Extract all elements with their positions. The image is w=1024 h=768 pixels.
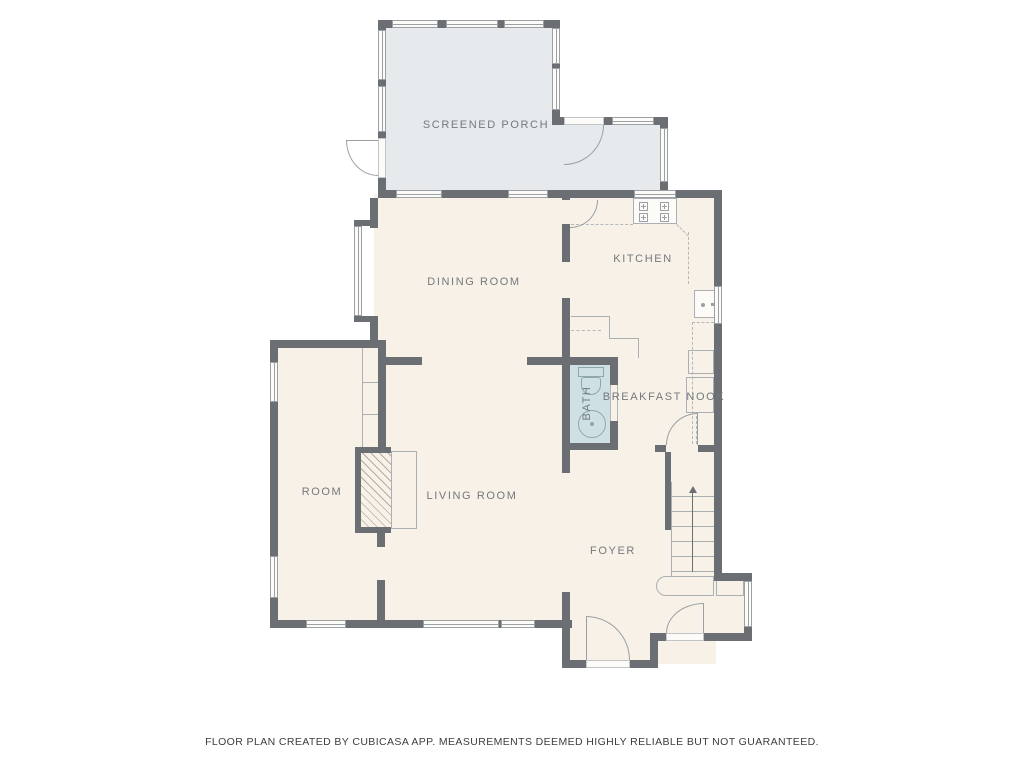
- window: [354, 226, 362, 316]
- kitchen-cabinet-line: [692, 322, 714, 323]
- window: [306, 620, 346, 628]
- wall: [386, 357, 422, 365]
- stove-icon: [633, 198, 677, 224]
- window: [504, 20, 544, 28]
- kitchen-island-line: [609, 338, 639, 339]
- kitchen-island-line: [571, 316, 609, 317]
- window: [446, 20, 498, 28]
- closet-shelf-line: [362, 382, 378, 383]
- window: [508, 190, 548, 198]
- wall: [562, 443, 618, 450]
- nook-cabinet: [688, 350, 714, 374]
- door-arc: [346, 140, 378, 176]
- kitchen-island-line: [638, 338, 639, 358]
- window: [612, 117, 654, 125]
- room-label-bath: BATH: [581, 386, 593, 421]
- room-label-kitchen: KITCHEN: [613, 253, 672, 265]
- wall: [377, 580, 385, 628]
- porch-ext-door: [564, 117, 604, 125]
- floor-plan: SCREENED PORCH DINING ROOM KITCHEN BATH …: [0, 0, 1024, 768]
- wall: [354, 316, 378, 322]
- kitchen-island-dash: [571, 330, 601, 331]
- kitchen-door: [562, 200, 570, 224]
- closet-shelf-line: [362, 414, 378, 415]
- disclaimer-text: FLOOR PLAN CREATED BY CUBICASA APP. MEAS…: [0, 736, 1024, 748]
- screened-porch-floor: [382, 24, 556, 194]
- stair-door: [666, 445, 698, 452]
- wall: [355, 447, 361, 533]
- wall: [714, 573, 752, 581]
- wall: [378, 348, 386, 452]
- wall: [270, 340, 386, 348]
- window: [392, 20, 438, 28]
- window: [270, 362, 278, 402]
- window: [660, 128, 668, 182]
- window: [378, 86, 386, 132]
- wall: [527, 357, 618, 365]
- window: [396, 190, 442, 198]
- room-label-screened-porch: SCREENED PORCH: [423, 119, 549, 131]
- kitchen-counter-line: [688, 232, 689, 284]
- room-label-dining-room: DINING ROOM: [427, 276, 520, 288]
- wall: [714, 190, 722, 581]
- room-label-foyer: FOYER: [590, 545, 636, 557]
- kitchen-island-line: [609, 316, 610, 338]
- fireplace-icon: [361, 453, 391, 527]
- window: [744, 581, 752, 627]
- fireplace-hearth: [391, 451, 417, 529]
- wall: [562, 190, 570, 200]
- window: [552, 68, 560, 110]
- stairs-up-arrow-icon: [692, 492, 693, 572]
- window: [634, 190, 676, 198]
- toilet-icon: [578, 367, 604, 377]
- room-label-breakfast-nook: BREAKFAST NOOK: [603, 391, 725, 403]
- window: [501, 620, 535, 628]
- window: [423, 620, 499, 628]
- window: [378, 30, 386, 80]
- bath-sink-icon: [590, 422, 594, 426]
- wall: [562, 224, 570, 262]
- vestibule-door: [666, 633, 704, 641]
- front-door: [586, 660, 630, 668]
- wall: [377, 533, 385, 547]
- porch-side-door: [378, 138, 386, 178]
- room-label-room: ROOM: [302, 486, 343, 498]
- kitchen-sink-icon: [694, 290, 716, 318]
- wall: [665, 452, 671, 530]
- window: [552, 28, 560, 64]
- closet-line: [362, 348, 363, 452]
- window: [270, 556, 278, 598]
- stairs-up-arrow-icon: [689, 486, 697, 493]
- stairs-bullnose: [656, 576, 714, 596]
- room-label-living-room: LIVING ROOM: [427, 490, 518, 502]
- wall: [610, 357, 618, 385]
- wall: [562, 592, 570, 668]
- window: [714, 286, 722, 324]
